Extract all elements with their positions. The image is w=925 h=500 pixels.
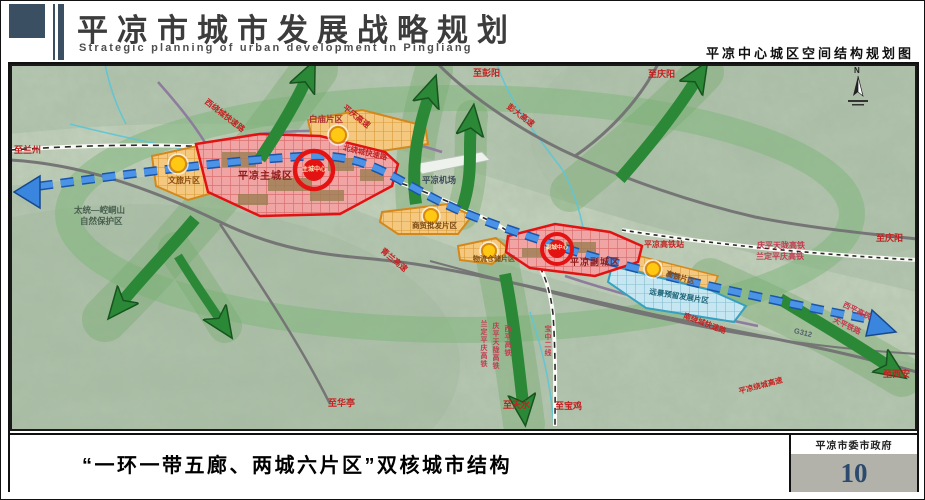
structure-caption: “一环一带五廊、两城六片区”双核城市结构	[10, 435, 789, 492]
agency-name: 平凉市委市政府	[791, 435, 917, 454]
page-subtitle: Strategic planning of urban development …	[79, 42, 473, 54]
node-gaotie	[644, 260, 662, 278]
logo-bar-thin	[53, 4, 55, 60]
compass-n: N	[854, 66, 860, 75]
logo-bar-thick	[58, 4, 64, 60]
page-number: 10	[791, 454, 917, 492]
node-baimiao	[328, 125, 348, 145]
node-wuliu	[480, 242, 498, 260]
planning-sheet: 平凉市城市发展战略规划 Strategic planning of urban …	[0, 0, 925, 500]
logo-square	[9, 4, 45, 38]
node-shangmao	[422, 207, 440, 225]
content-frame: N 至兰州 西绕城快速路 平庆高速 彭大高速 至彭阳 至庆阳 白庙片区 北绕城快…	[8, 62, 919, 492]
node-wenlv	[168, 154, 188, 174]
planning-map: N 至兰州 西绕城快速路 平庆高速 彭大高速 至彭阳 至庆阳 白庙片区 北绕城快…	[10, 64, 917, 431]
map-name: 平凉中心城区空间结构规划图	[706, 43, 914, 62]
page-number-box: 平凉市委市政府 10	[789, 435, 917, 492]
footer: “一环一带五廊、两城六片区”双核城市结构 平凉市委市政府 10	[10, 433, 917, 492]
map-graphics: N	[10, 64, 917, 431]
